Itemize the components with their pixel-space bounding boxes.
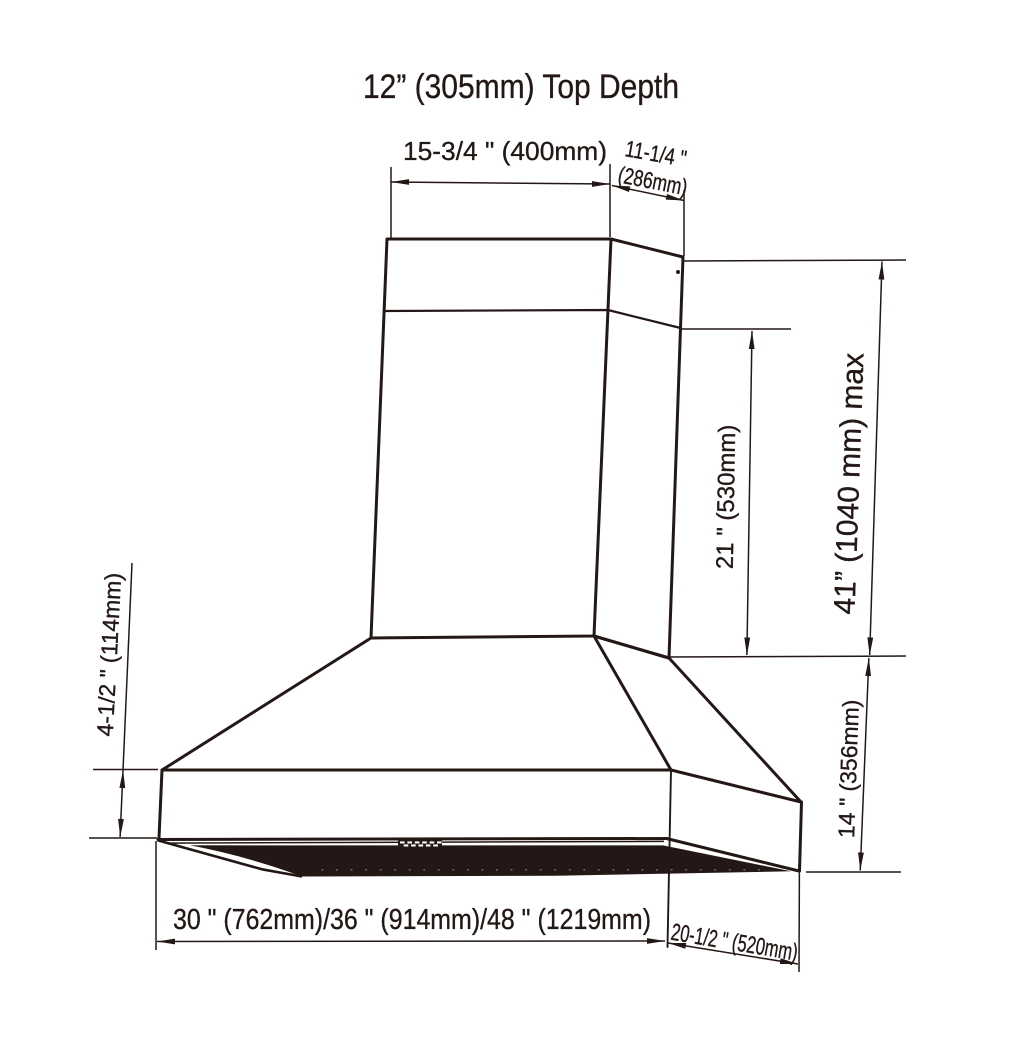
svg-text:15-3/4 " (400mm): 15-3/4 " (400mm) [403,136,607,166]
svg-text:21 " (530mm): 21 " (530mm) [712,424,742,569]
svg-text:30 " (762mm)/36 " (914mm)/48 ": 30 " (762mm)/36 " (914mm)/48 " (1219mm) [173,904,651,936]
svg-text:14 " (356mm): 14 " (356mm) [833,699,864,838]
svg-text:12” (305mm) Top Depth: 12” (305mm) Top Depth [363,68,679,106]
